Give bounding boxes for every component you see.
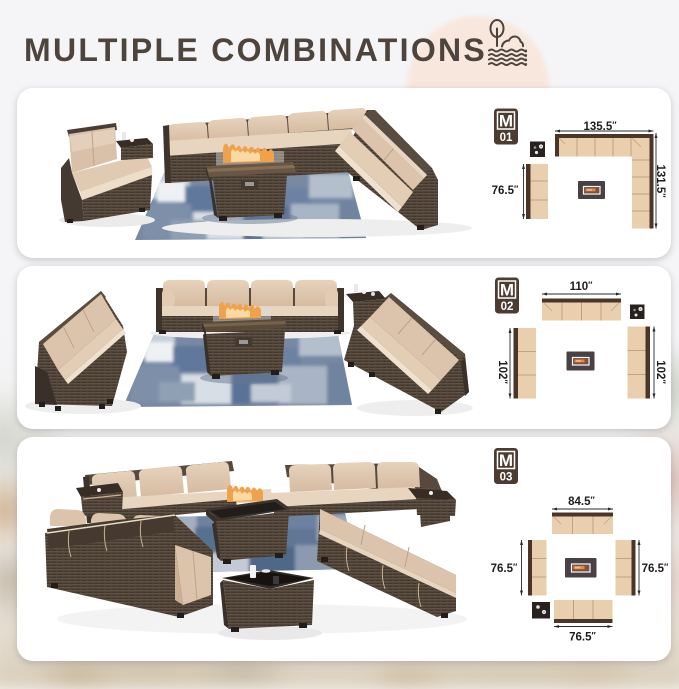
svg-text:76.5″: 76.5″	[569, 631, 596, 644]
svg-text:84.5″: 84.5″	[568, 495, 595, 508]
svg-text:102″: 102″	[496, 360, 509, 384]
svg-text:76.5″: 76.5″	[491, 562, 518, 575]
svg-text:76.5″: 76.5″	[492, 184, 519, 197]
svg-text:01: 01	[500, 132, 513, 144]
svg-text:M: M	[499, 112, 513, 131]
svg-text:102″: 102″	[654, 360, 667, 384]
svg-text:03: 03	[500, 472, 513, 484]
svg-text:M: M	[500, 281, 514, 300]
svg-text:76.5″: 76.5″	[642, 562, 669, 575]
svg-text:110″: 110″	[570, 280, 594, 293]
svg-text:M: M	[499, 451, 513, 470]
svg-text:02: 02	[501, 301, 514, 313]
